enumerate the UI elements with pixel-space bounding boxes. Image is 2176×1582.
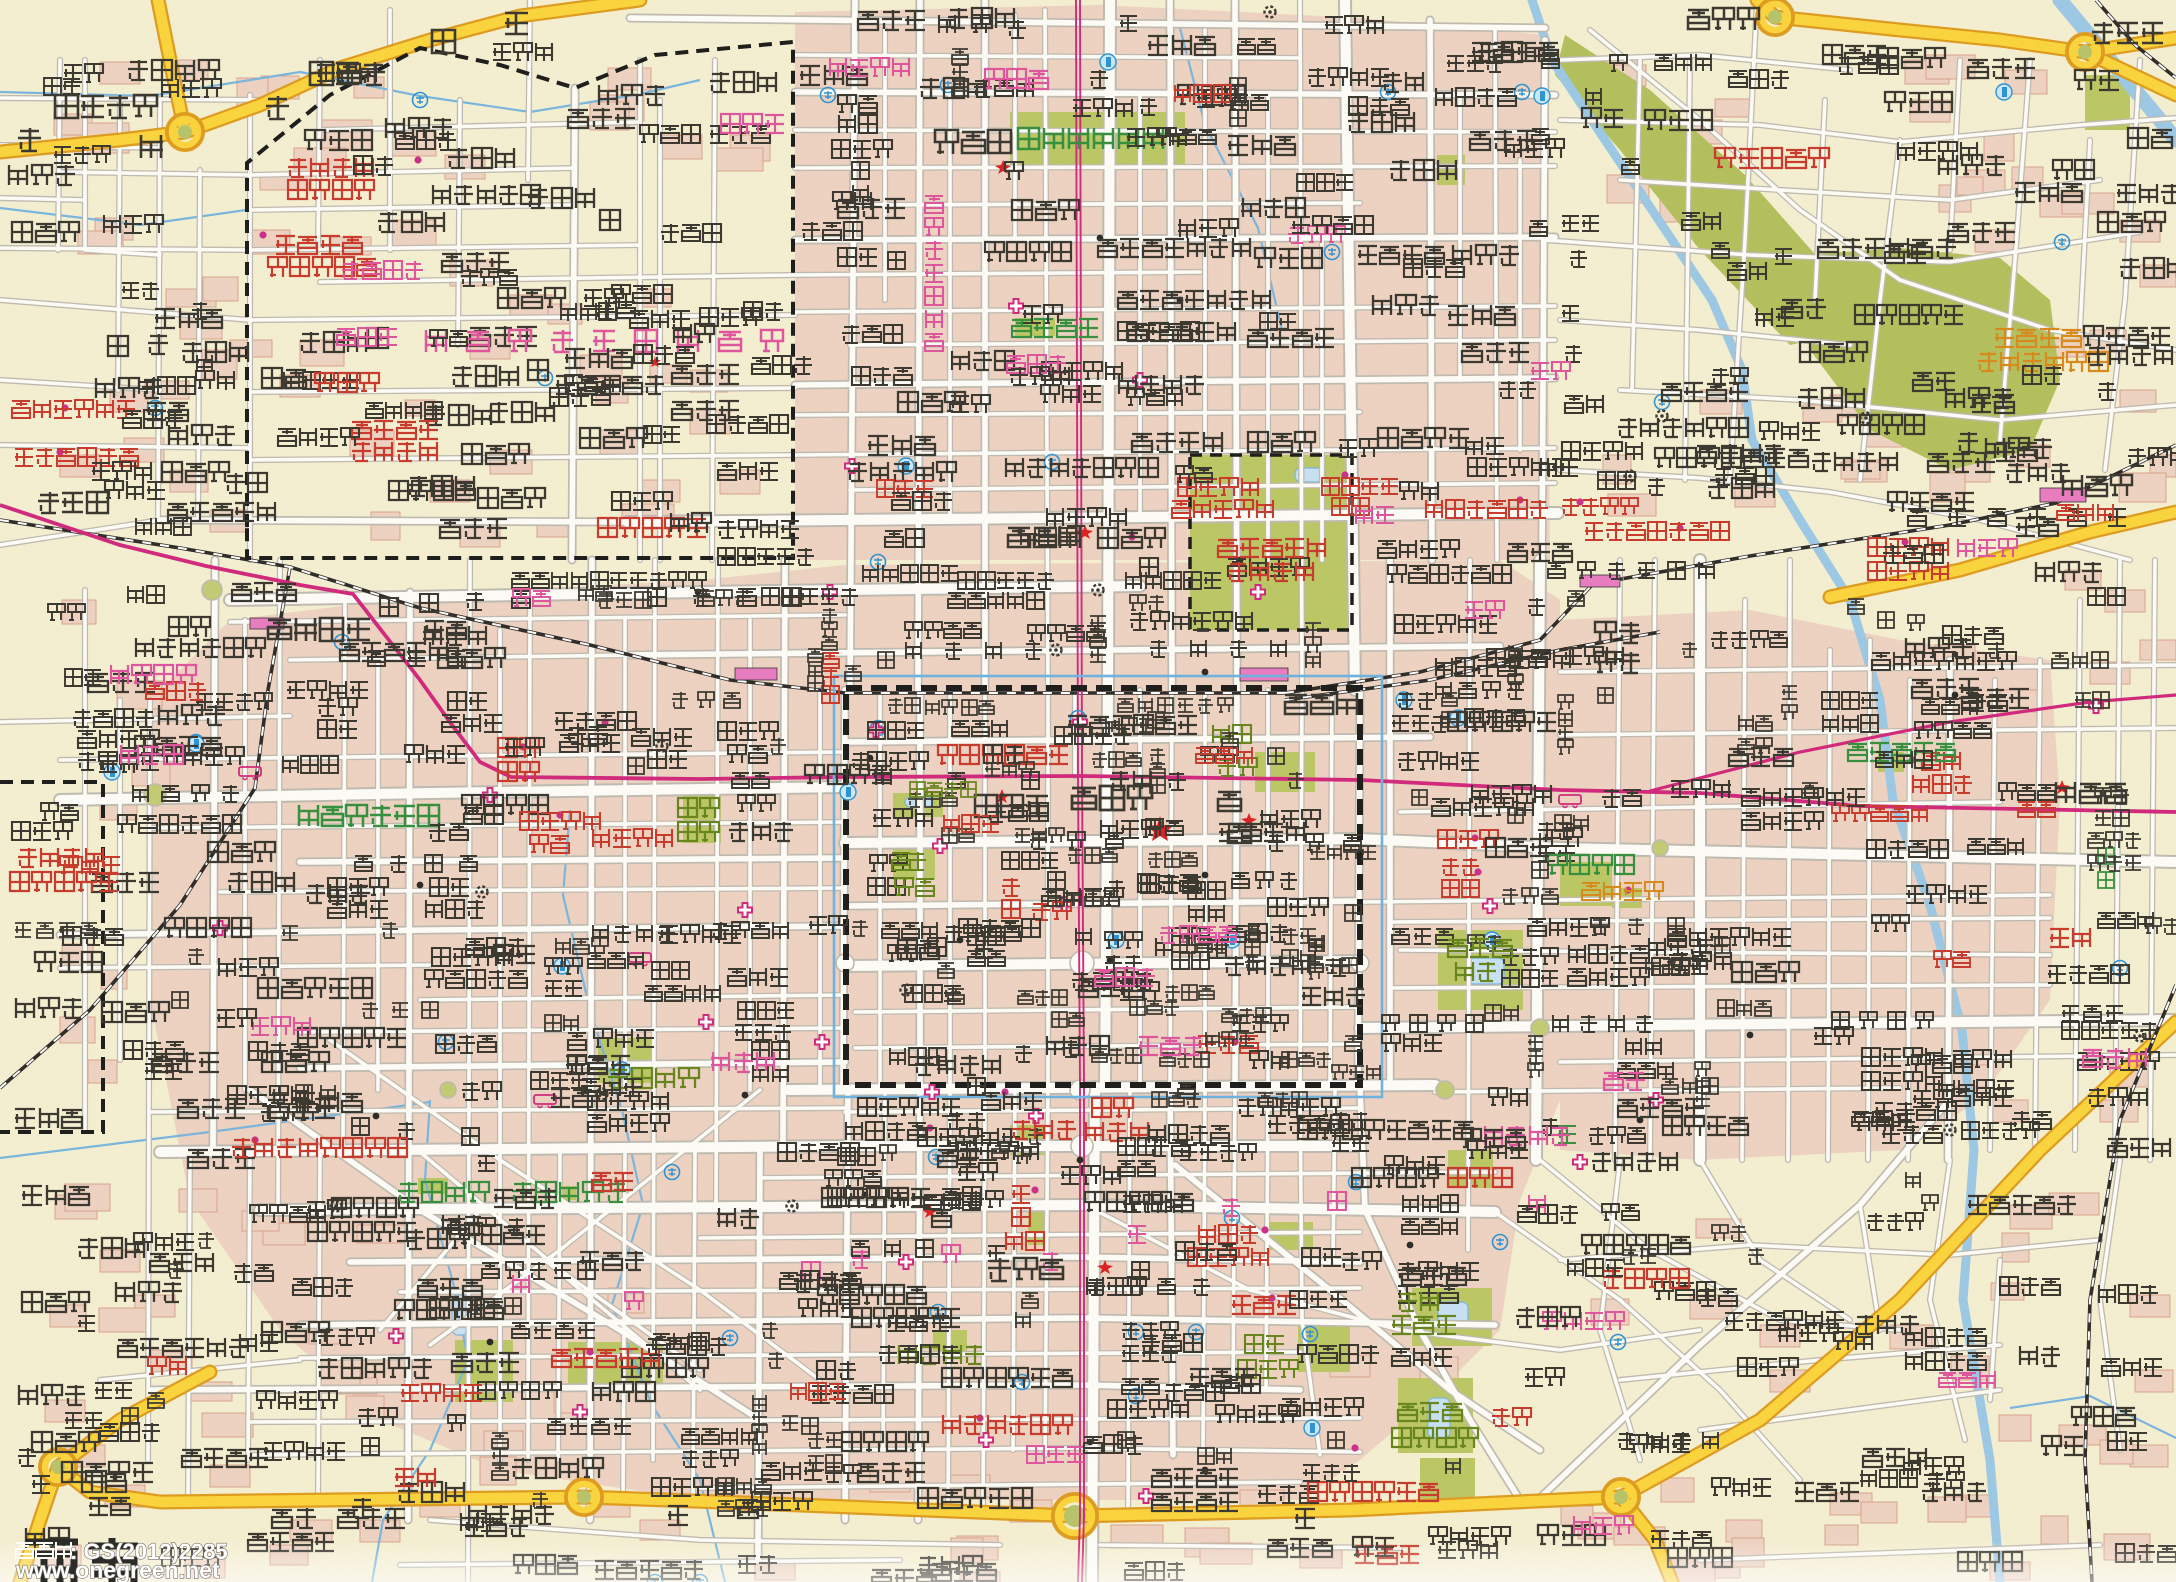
svg-text:www.onegreen.net: www.onegreen.net bbox=[15, 1557, 220, 1582]
